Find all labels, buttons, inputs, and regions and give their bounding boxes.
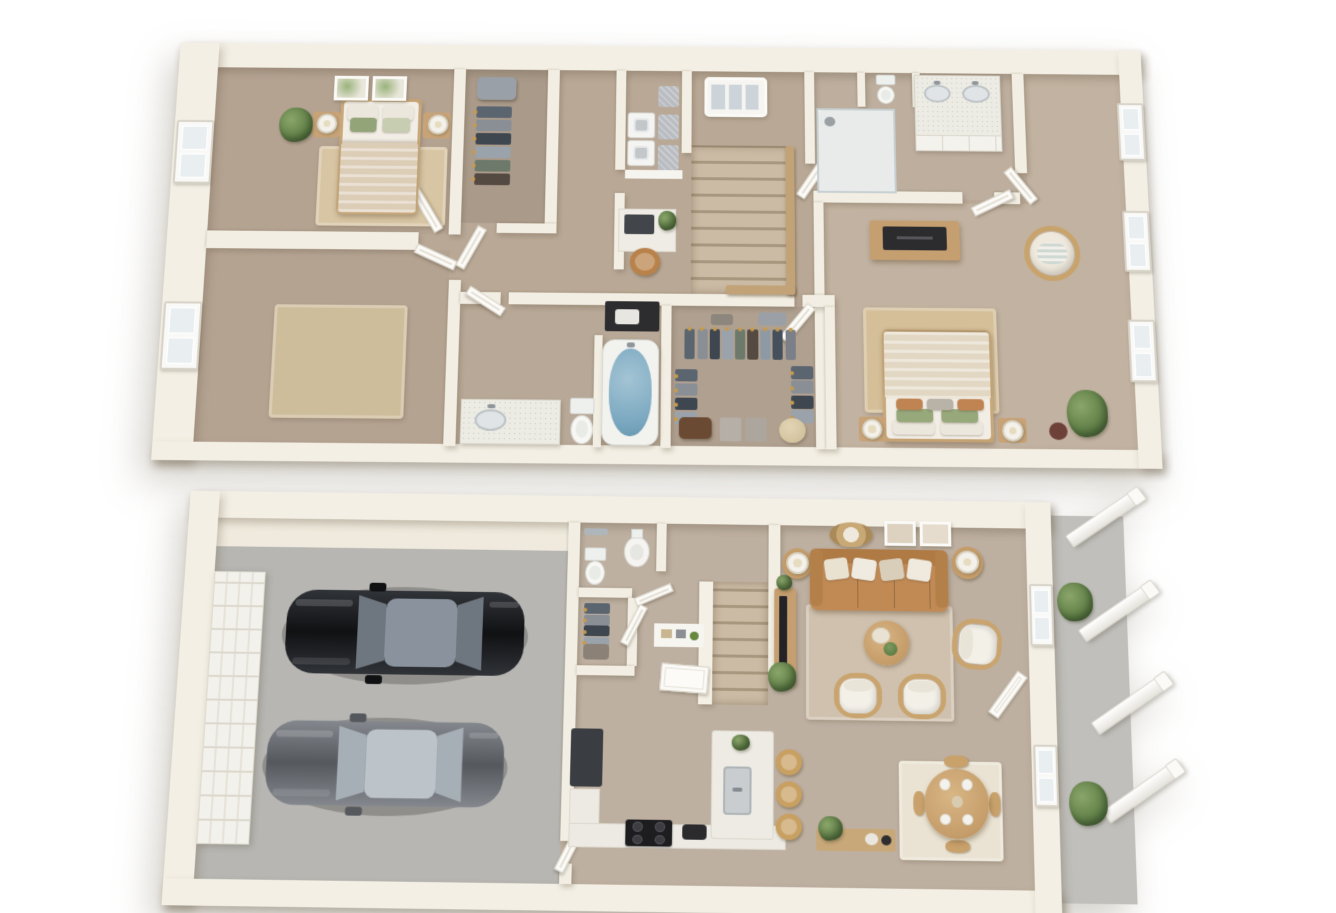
sofa-pillow (824, 557, 850, 581)
hanging-garment (584, 615, 609, 626)
armchair (834, 673, 882, 719)
hanging-garment (735, 329, 745, 360)
wall (857, 73, 865, 107)
master-window-1 (1122, 211, 1152, 272)
desk-chair (630, 248, 660, 276)
car-graphic-part (292, 657, 350, 665)
wall (825, 307, 837, 449)
wall (206, 230, 419, 249)
toilet-tank (584, 547, 606, 560)
papasan-chair (1023, 226, 1081, 282)
skylight-pane (728, 83, 743, 110)
dryer (627, 140, 655, 166)
window-pane (179, 153, 206, 178)
basket (658, 86, 679, 107)
window-pane (1122, 108, 1140, 130)
bedroom3-rug (268, 304, 407, 419)
hanger (776, 327, 780, 331)
wall (577, 665, 635, 676)
car-graphic-part (356, 595, 387, 669)
post-cap (1153, 670, 1175, 692)
closet-suitcase (477, 77, 517, 100)
car-graphic (255, 710, 514, 820)
bedroom2-bed (336, 99, 422, 215)
window-pane (1134, 353, 1153, 377)
sitting-window (1117, 103, 1147, 161)
bed-pillow (941, 409, 978, 423)
hanging-garment (791, 395, 813, 409)
floor-plan-rendering (0, 0, 1336, 913)
car-graphic-part (369, 583, 386, 592)
hanger (763, 327, 767, 331)
window-pane (166, 337, 194, 364)
bedroom3-window (160, 301, 203, 370)
wall (804, 72, 815, 163)
stove-burner (654, 822, 664, 832)
window-pane (1033, 589, 1049, 613)
bed-pillow (896, 409, 933, 423)
wall (615, 71, 626, 170)
vanity-sink (962, 85, 990, 103)
coffee-table (863, 620, 909, 665)
dining-set (913, 755, 1002, 853)
stove (625, 819, 672, 846)
skylight-pane (711, 83, 726, 110)
television (779, 596, 787, 672)
towel (615, 309, 639, 324)
car-graphic-part (435, 727, 464, 802)
hanging-garment (760, 329, 770, 360)
walkin-suitcase (679, 417, 712, 439)
toilet-tank (570, 398, 595, 414)
bed-pillow (383, 118, 410, 132)
toilet-bowl (570, 415, 593, 445)
wall (660, 306, 671, 448)
window-pane (1038, 750, 1054, 774)
planter-pot (1049, 422, 1068, 440)
hanging-garment (675, 397, 697, 410)
hanger (674, 374, 678, 378)
hanger (673, 403, 677, 407)
tub-faucet (626, 342, 635, 347)
vanity-cabinet (916, 135, 1001, 151)
car-graphic-part (295, 599, 353, 607)
wall-art (884, 521, 916, 546)
shelf-item (661, 629, 672, 638)
hat-box (779, 418, 806, 443)
hanger (583, 619, 587, 623)
car-graphic-part (469, 732, 499, 738)
master-plant (1066, 390, 1109, 438)
wall (579, 587, 633, 597)
laundry-counter (625, 170, 683, 179)
hanger (790, 386, 794, 390)
master-window-2 (1127, 320, 1158, 383)
shower-head (824, 117, 835, 127)
chair-back-cushion (907, 681, 936, 693)
bathtub (601, 339, 659, 446)
hanging-garment (722, 329, 732, 360)
bed-accent-pillow (958, 399, 985, 410)
hanging-garment (773, 329, 784, 360)
shelf-item (690, 632, 699, 641)
car-graphic-part (455, 596, 484, 670)
wall (496, 223, 556, 233)
window-pane (1123, 133, 1141, 155)
place-setting (940, 813, 952, 825)
wall (682, 71, 692, 153)
master-shower (816, 108, 896, 193)
bed-blanket (884, 332, 991, 400)
bar-stool (776, 749, 802, 775)
bowl (881, 835, 891, 845)
post-cap (1139, 579, 1161, 601)
hanger (582, 630, 586, 634)
shrub (1057, 582, 1094, 621)
armchair (898, 674, 947, 720)
living-window (1029, 584, 1054, 646)
console-plant (818, 816, 842, 841)
place-setting (939, 778, 950, 790)
stair-rail (726, 285, 795, 295)
dining-window (1033, 745, 1059, 808)
car-graphic-part (364, 729, 438, 799)
car-black (277, 580, 532, 688)
dining-chair (989, 792, 1001, 817)
printer (624, 214, 654, 234)
car-graphic-part (345, 807, 362, 816)
car-gray (255, 710, 514, 820)
sofa-arm (810, 548, 823, 606)
bath2-toilet (566, 398, 598, 446)
hanging-garment (476, 106, 513, 118)
island-sink (723, 766, 752, 815)
window-pane (1034, 617, 1050, 641)
bar-stool (776, 781, 802, 808)
shelf-item (676, 629, 686, 638)
wall (656, 524, 667, 572)
centerpiece (951, 796, 963, 808)
master-sitting-floor (1023, 74, 1130, 209)
hanging-garment (791, 366, 813, 380)
sofa-pillow (907, 558, 933, 582)
window-pane (1133, 325, 1152, 349)
towel-bar (584, 528, 608, 535)
hanging-garment (475, 119, 512, 131)
master-bed (882, 330, 995, 443)
kitchen-counter (569, 788, 600, 825)
sofa-pillow (879, 558, 905, 582)
hall-skylight (704, 77, 767, 117)
dining-chair (945, 840, 970, 853)
fridge (570, 728, 604, 786)
hanging-garment (475, 133, 512, 145)
duffel-bag (583, 644, 609, 660)
sink-faucet (732, 788, 742, 792)
hanging-garment (697, 329, 707, 360)
island-plant (732, 734, 750, 750)
vanity-sink (923, 85, 950, 103)
car-graphic-part (489, 602, 519, 608)
plant (768, 662, 796, 692)
hanger (738, 327, 742, 331)
hanging-garment (585, 603, 610, 614)
powder-toilet (581, 547, 609, 586)
wall-art (372, 76, 407, 101)
hanging-garment (791, 380, 813, 394)
window-pane (1128, 243, 1147, 267)
tub-water (609, 348, 652, 436)
table-plant (884, 642, 898, 656)
basket (658, 114, 679, 139)
staircase (712, 582, 768, 706)
bath2-vanity (460, 399, 561, 445)
bed-pillow (941, 421, 983, 436)
hanging-garment (584, 626, 609, 637)
faucet (933, 80, 940, 84)
dining-chair (913, 791, 925, 816)
sink-basin (623, 536, 650, 567)
second-floor-plan (151, 43, 1163, 469)
coat-closet-clothes (581, 603, 612, 648)
bed-blanket (338, 142, 419, 212)
storage-box (720, 417, 742, 441)
chair-back-cushion (844, 680, 873, 692)
wall-art (334, 76, 369, 101)
sofa (810, 548, 949, 611)
hanger (713, 327, 717, 331)
hanger (750, 327, 754, 331)
hanging-garment (474, 160, 511, 172)
shelf-bag (758, 312, 786, 325)
hanger (688, 327, 692, 331)
stove-burner (654, 835, 664, 845)
garage-wallface (212, 518, 568, 551)
car-graphic-part (350, 713, 367, 722)
window-pane (168, 307, 196, 334)
pedestal-sink (621, 529, 653, 571)
window-pane (1127, 216, 1146, 239)
stair-rail (785, 146, 795, 295)
bowl (865, 833, 878, 845)
hanging-garment (710, 329, 720, 360)
window-pane (181, 125, 208, 150)
closet-clothes (470, 105, 516, 186)
master-vanity (914, 75, 1003, 152)
hanger (788, 327, 792, 331)
dining-chair (944, 755, 968, 768)
post-cap (1164, 758, 1186, 781)
washer (627, 112, 655, 138)
place-setting (962, 779, 973, 791)
car-graphic (277, 580, 532, 688)
lamp (862, 419, 883, 440)
lamp (786, 552, 809, 574)
post-cap (1126, 486, 1148, 507)
accent-chair (950, 617, 1003, 672)
master-dresser (869, 220, 960, 260)
bedroom2-window (173, 120, 215, 184)
front-door (659, 663, 709, 694)
sofa-arm (935, 550, 948, 608)
sink-backsplash (631, 529, 644, 538)
shrub (1068, 781, 1108, 826)
hanger (790, 401, 794, 405)
bed-pillow (350, 118, 377, 132)
round-mirror (829, 522, 872, 547)
hanging-garment (474, 173, 511, 185)
window-pane (1038, 777, 1054, 801)
hanging-garment (474, 146, 511, 158)
hanger (789, 371, 793, 375)
stove-burner (633, 822, 643, 832)
small-appliance (682, 824, 707, 840)
basket (658, 145, 679, 170)
stove-burner (633, 834, 643, 844)
car-graphic-part (276, 730, 333, 738)
master-toilet (873, 75, 899, 105)
toilet-tank (875, 75, 896, 85)
walkin-clothes-top (683, 326, 797, 363)
hanger (583, 608, 587, 612)
staircase (691, 145, 792, 294)
hanging-garment (748, 329, 758, 360)
desk-plant (658, 211, 676, 231)
hanging-garment (685, 329, 695, 360)
faucet (487, 404, 495, 408)
storage-box (745, 418, 767, 442)
first-floor-plan (161, 491, 1185, 913)
toilet-bowl (585, 561, 605, 585)
hanging-garment (675, 383, 697, 396)
walkin-clothes-right (789, 365, 816, 424)
shelf-bag (711, 314, 733, 325)
lamp (955, 550, 979, 573)
bar-stool (776, 813, 802, 840)
vanity-sink (475, 409, 507, 431)
wall-art (920, 521, 952, 546)
toilet-bowl (877, 86, 896, 105)
hanging-garment (675, 369, 697, 382)
hanger (674, 388, 678, 392)
sofa-pillow (851, 557, 877, 581)
bed-accent-pillow (927, 399, 954, 410)
tv-stand-bar (897, 236, 933, 239)
hanging-garment (785, 330, 796, 361)
car-graphic-part (384, 598, 458, 667)
papasan-pillow (1037, 242, 1067, 264)
skylight-pane (745, 84, 760, 111)
bed-accent-pillow (896, 399, 923, 410)
car-graphic-part (272, 789, 330, 797)
car-graphic-part (365, 675, 382, 684)
lamp (1002, 420, 1024, 442)
hanger (673, 417, 677, 421)
car-graphic-part (336, 726, 367, 801)
